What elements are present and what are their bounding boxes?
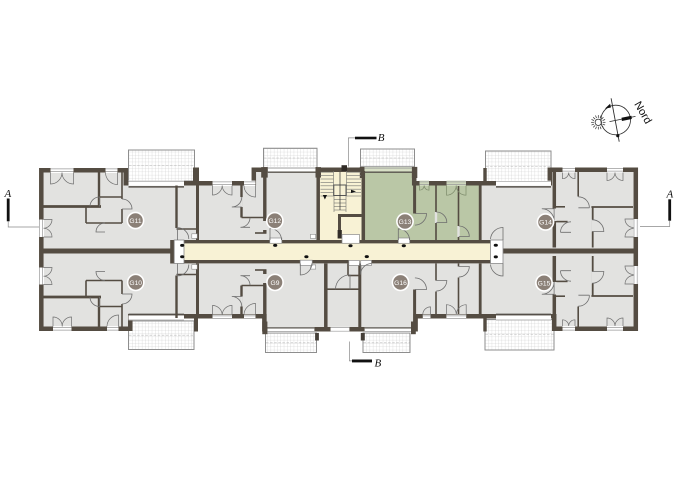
svg-text:G12: G12 xyxy=(268,218,281,225)
svg-text:B: B xyxy=(375,358,382,370)
svg-text:G11: G11 xyxy=(129,218,141,225)
svg-text:G16: G16 xyxy=(394,280,407,287)
svg-text:B: B xyxy=(378,132,385,144)
svg-text:G10: G10 xyxy=(129,280,142,287)
svg-text:A: A xyxy=(4,188,12,200)
svg-text:G14: G14 xyxy=(539,220,552,227)
svg-text:G9: G9 xyxy=(271,280,280,287)
svg-text:A: A xyxy=(666,189,674,201)
svg-text:G13: G13 xyxy=(399,219,412,226)
svg-text:G15: G15 xyxy=(538,280,551,287)
